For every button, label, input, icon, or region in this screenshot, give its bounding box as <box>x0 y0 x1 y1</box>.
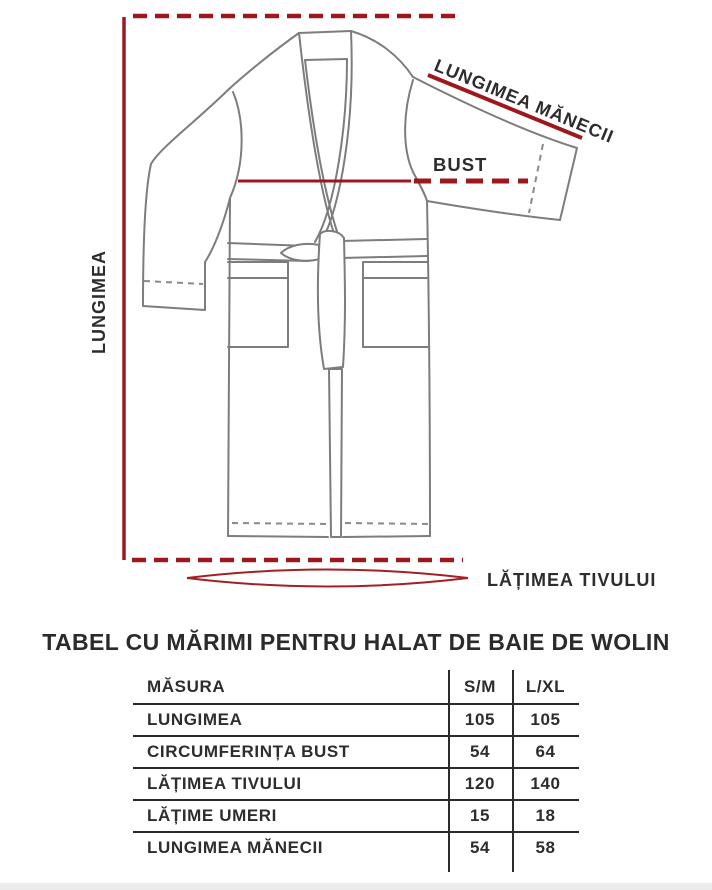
belt-tail-front <box>318 231 345 369</box>
column-header-sm: S/M <box>448 677 512 697</box>
bathrobe-measurement-diagram: LUNGIMEA LUNGIMEA MĂNECII BUST LĂȚIMEA T… <box>0 0 712 624</box>
row-sm: 54 <box>448 742 512 762</box>
body-right-edge <box>427 201 430 536</box>
bathrobe-outline <box>143 31 577 537</box>
row-sm: 15 <box>448 806 512 826</box>
hem-width-ellipse <box>187 570 468 587</box>
row-sm: 54 <box>448 838 512 858</box>
row-lxl: 140 <box>512 774 579 794</box>
hem-width-label: LĂȚIMEA TIVULUI <box>487 569 656 590</box>
table-column-divider-1 <box>448 670 450 872</box>
row-lxl: 105 <box>512 710 579 730</box>
left-cuff-stitch <box>144 281 203 284</box>
column-header-lxl: L/XL <box>512 677 579 697</box>
table-column-divider-2 <box>512 670 514 872</box>
right-cuff-stitch <box>529 144 543 213</box>
row-label: LĂȚIME UMERI <box>133 806 448 826</box>
row-lxl: 18 <box>512 806 579 826</box>
lapel-right <box>315 31 352 243</box>
lapel-left <box>299 33 341 243</box>
page-title: TABEL CU MĂRIMI PENTRU HALAT DE BAIE DE … <box>0 629 712 657</box>
row-label: CIRCUMFERINȚA BUST <box>133 742 448 762</box>
hem-edge <box>228 536 430 537</box>
row-lxl: 64 <box>512 742 579 762</box>
row-sm: 105 <box>448 710 512 730</box>
body-left-edge <box>228 198 230 536</box>
row-sm: 120 <box>448 774 512 794</box>
column-header-measure: MĂSURA <box>133 677 448 697</box>
size-guide-page: LUNGIMEA LUNGIMEA MĂNECII BUST LĂȚIMEA T… <box>0 0 712 890</box>
row-label: LUNGIMEA <box>133 710 448 730</box>
left-pocket <box>228 262 288 347</box>
belt-knot <box>281 244 320 261</box>
back-collar <box>299 31 351 60</box>
bust-label: BUST <box>433 154 487 175</box>
right-pocket <box>363 262 428 347</box>
bottom-strip <box>0 883 712 890</box>
row-label: LĂȚIMEA TIVULUI <box>133 774 448 794</box>
size-table: MĂSURA S/M L/XL LUNGIMEA 105 105 CIRCUMF… <box>133 670 579 863</box>
left-sleeve <box>143 90 230 310</box>
length-label: LUNGIMEA <box>89 250 109 354</box>
right-shoulder <box>351 31 413 77</box>
belt-tail-back <box>329 369 342 537</box>
left-shoulder <box>228 33 299 90</box>
row-label: LUNGIMEA MĂNECII <box>133 838 448 858</box>
row-lxl: 58 <box>512 838 579 858</box>
